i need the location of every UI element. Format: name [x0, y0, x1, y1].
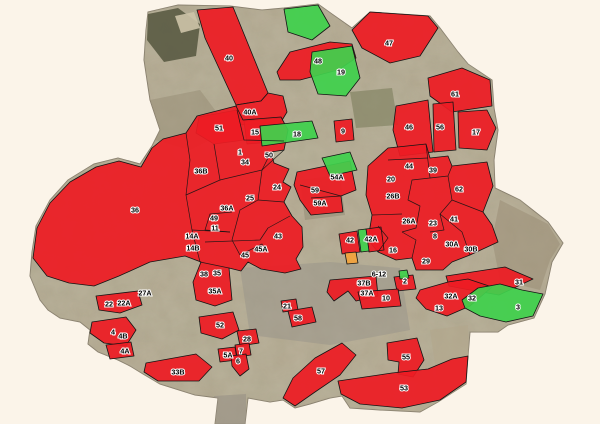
- zone-label-38[interactable]: 38: [200, 270, 208, 279]
- zone-label-59A[interactable]: 59A: [313, 199, 326, 208]
- zone-label-37A[interactable]: 37A: [360, 289, 373, 298]
- zone-label-42[interactable]: 42: [346, 236, 354, 245]
- zone-label-36B[interactable]: 36B: [194, 167, 207, 176]
- zone-label-31[interactable]: 31: [515, 278, 523, 287]
- zone-label-40A[interactable]: 40A: [243, 108, 256, 117]
- zone-label-42A[interactable]: 42A: [364, 235, 377, 244]
- zone-label-27A[interactable]: 27A: [138, 289, 151, 298]
- zone-label-35A[interactable]: 35A: [208, 287, 221, 296]
- zone-label-36A[interactable]: 36A: [220, 204, 233, 213]
- zone-label-4A[interactable]: 4A: [120, 347, 129, 356]
- zone-label-30A[interactable]: 30A: [445, 240, 458, 249]
- zone-label-25[interactable]: 25: [246, 194, 254, 203]
- zone-label-22A[interactable]: 22A: [117, 299, 130, 308]
- zone-label-36[interactable]: 36: [131, 206, 139, 215]
- zoning-map[interactable]: 4040A5115189474819614656171345036B362425…: [0, 0, 600, 424]
- zone-label-28[interactable]: 28: [243, 335, 251, 344]
- zone-label-44[interactable]: 44: [405, 162, 413, 171]
- zone-label-15[interactable]: 15: [251, 128, 259, 137]
- zone-label-20[interactable]: 20: [387, 175, 395, 184]
- zone-label-54A[interactable]: 54A: [330, 173, 343, 182]
- zone-label-26A[interactable]: 26A: [402, 217, 415, 226]
- zone-label-4B[interactable]: 4B: [118, 332, 127, 341]
- aerial-patch-8: [214, 394, 246, 424]
- zone-label-19[interactable]: 19: [337, 68, 345, 77]
- zone-label-56[interactable]: 56: [436, 123, 444, 132]
- zone-label-52[interactable]: 52: [216, 321, 224, 330]
- zone-label-1[interactable]: 1: [238, 148, 242, 157]
- zone-label-48[interactable]: 48: [314, 57, 322, 66]
- zone-label-30B[interactable]: 30B: [464, 245, 477, 254]
- zone-label-14B[interactable]: 14B: [186, 244, 199, 253]
- zone-label-5A[interactable]: 5A: [223, 351, 232, 360]
- zone-label-62[interactable]: 62: [455, 185, 463, 194]
- orange-patch[interactable]: [345, 252, 358, 264]
- zone-label-45A[interactable]: 45A: [254, 245, 267, 254]
- zone-label-61[interactable]: 61: [451, 90, 459, 99]
- zone-label-55[interactable]: 55: [402, 353, 410, 362]
- zone-label-32[interactable]: 32: [468, 294, 476, 303]
- zone-label-7[interactable]: 7: [239, 347, 243, 356]
- zone-label-35[interactable]: 35: [213, 269, 221, 278]
- zone-label-4[interactable]: 4: [111, 328, 115, 337]
- aerial-patch-2: [350, 88, 398, 128]
- zone-label-46[interactable]: 46: [405, 123, 413, 132]
- zone-label-17[interactable]: 17: [472, 128, 480, 137]
- zone-label-32A[interactable]: 32A: [444, 292, 457, 301]
- zone-label-41[interactable]: 41: [450, 215, 458, 224]
- zone-label-37B[interactable]: 37B: [357, 279, 370, 288]
- zones-northeast-cluster[interactable]: [366, 144, 498, 270]
- zone-label-6[interactable]: 6: [236, 357, 240, 366]
- zone-label-18[interactable]: 18: [293, 130, 301, 139]
- zone-label-9[interactable]: 9: [341, 127, 345, 136]
- zone-label-39[interactable]: 39: [429, 166, 437, 175]
- map-canvas[interactable]: 4040A5115189474819614656171345036B362425…: [0, 0, 600, 424]
- zone-label-21[interactable]: 21: [283, 302, 291, 311]
- zone-label-22[interactable]: 22: [105, 300, 113, 309]
- zone-label-33B[interactable]: 33B: [171, 368, 184, 377]
- zone-label-40[interactable]: 40: [225, 54, 233, 63]
- zone-label-47[interactable]: 47: [385, 39, 393, 48]
- zone-label-24[interactable]: 24: [273, 183, 281, 192]
- zone-label-53[interactable]: 53: [400, 384, 408, 393]
- zone-label-43[interactable]: 43: [274, 232, 282, 241]
- zone-label-23[interactable]: 23: [429, 219, 437, 228]
- zone-label-26B[interactable]: 26B: [386, 192, 399, 201]
- zone-label-2[interactable]: 2: [403, 277, 407, 286]
- zone-label-8[interactable]: 8: [433, 232, 437, 241]
- zone-label-29[interactable]: 29: [422, 257, 430, 266]
- zone-label-58[interactable]: 58: [294, 314, 302, 323]
- zone-label-11[interactable]: 11: [211, 224, 219, 233]
- zone-label-34[interactable]: 34: [241, 158, 249, 167]
- zone-label-3[interactable]: 3: [516, 303, 520, 312]
- zone-label-45[interactable]: 45: [241, 251, 249, 260]
- zone-label-10[interactable]: 10: [382, 294, 390, 303]
- zone-label-14A[interactable]: 14A: [185, 232, 198, 241]
- zone-label-49[interactable]: 49: [210, 214, 218, 223]
- zone-label-13[interactable]: 13: [435, 304, 443, 313]
- zone-label-50[interactable]: 50: [265, 151, 273, 160]
- zone-label-16[interactable]: 16: [389, 246, 397, 255]
- zone-label-51[interactable]: 51: [215, 124, 223, 133]
- zone-label-6-12[interactable]: 6-12: [372, 270, 386, 279]
- zone-label-57[interactable]: 57: [317, 367, 325, 376]
- zone-label-59[interactable]: 59: [311, 186, 319, 195]
